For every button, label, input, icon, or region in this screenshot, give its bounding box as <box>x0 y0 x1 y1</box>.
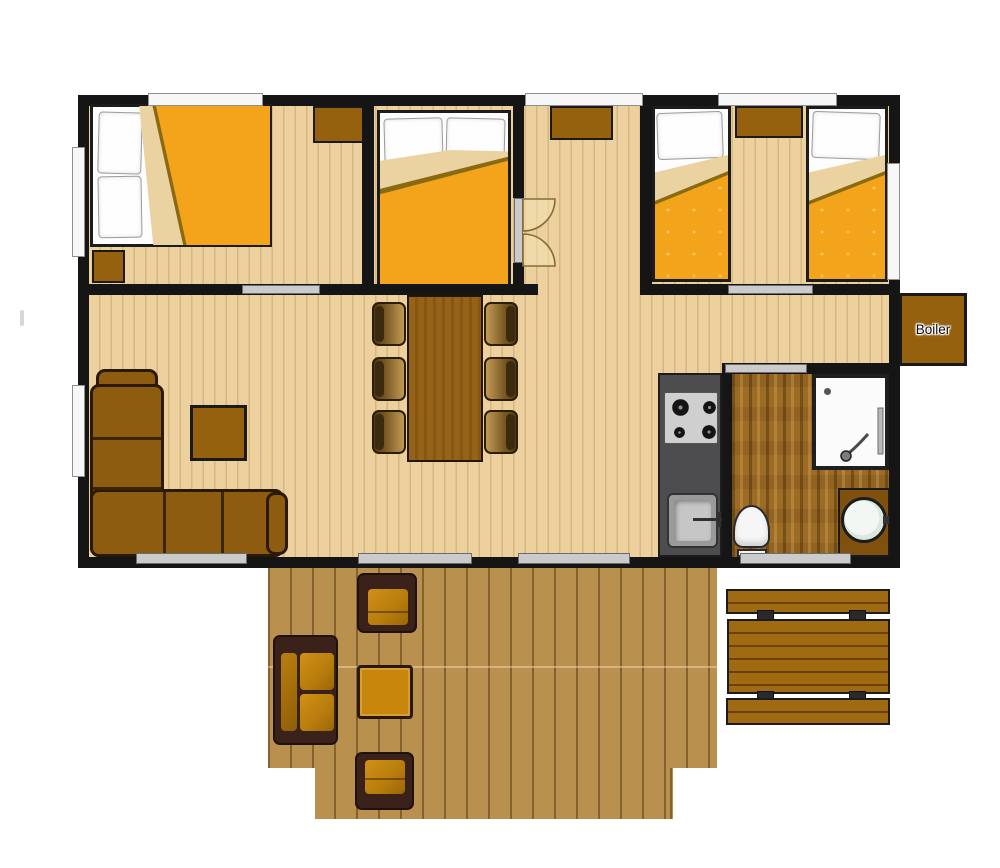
sofa-cushion-seam <box>93 487 161 490</box>
door-leaf-arc <box>523 199 555 231</box>
pillow <box>656 111 724 160</box>
sofa-cushion-seam <box>221 492 224 554</box>
picnic-bench-bottom <box>726 698 890 725</box>
wall-between-double-bedrooms <box>362 106 374 295</box>
hob-burner <box>672 399 689 416</box>
sofa-cushion-seam <box>163 492 166 554</box>
pillow <box>811 111 881 160</box>
boiler-cupboard: Boiler <box>899 293 967 366</box>
dining-chair <box>484 302 518 346</box>
shower-door-handle <box>878 408 883 454</box>
window-left-bedroom <box>72 147 85 257</box>
duvet <box>655 155 728 279</box>
corner-sofa-horizontal <box>90 489 284 557</box>
sofa-right-armrest <box>266 492 288 555</box>
wall-bedroom2-hall-upper <box>513 106 524 198</box>
dining-chair <box>484 357 518 401</box>
deck-armchair-bottom <box>355 752 414 810</box>
deck-armchair-top <box>357 573 417 633</box>
shower-drain <box>824 388 831 395</box>
wall-hall-twinroom <box>640 106 652 295</box>
hob-burner <box>674 427 685 438</box>
window-bottom-bathroom <box>740 553 851 564</box>
boiler-label: Boiler <box>916 322 951 337</box>
door-bedroom-left <box>242 285 320 294</box>
single-bed-right <box>806 106 888 282</box>
deck-sofa <box>273 635 338 745</box>
nightstand-bedroom-left <box>313 106 365 143</box>
dining-chair <box>484 410 518 454</box>
sink-faucet-handle <box>718 512 721 527</box>
double-bed-middle <box>377 110 511 284</box>
picnic-table <box>727 619 890 694</box>
sofa-back-cushion <box>281 653 297 731</box>
shower-fixture-icon <box>838 428 884 466</box>
living-coffee-table <box>190 405 247 461</box>
dining-chair <box>372 302 406 346</box>
door-leaf-arc <box>523 234 555 266</box>
sofa-seat-cushion <box>300 653 334 690</box>
floor-plan-canvas: Boiler <box>0 0 1000 868</box>
stray-print-mark <box>20 310 24 326</box>
window-bottom-living <box>136 553 247 564</box>
window-top-bedroom-left <box>148 93 263 106</box>
chair-backrest <box>506 361 515 397</box>
hall-wardrobe <box>550 106 613 140</box>
window-right-twin-room <box>887 163 900 280</box>
door-bathroom <box>725 364 807 373</box>
window-left-living <box>72 385 85 477</box>
sofa-cushion-seam <box>93 437 161 440</box>
chair-backrest <box>375 306 384 342</box>
dining-chair <box>372 410 406 454</box>
double-bed-left <box>90 104 272 247</box>
duvet <box>131 106 270 245</box>
shower-head <box>841 451 851 461</box>
dining-chair <box>372 357 406 401</box>
window-top-twin-room <box>718 93 837 106</box>
door-swing-arcs <box>513 195 563 270</box>
chair-backrest <box>375 361 384 397</box>
washbasin-tap <box>883 516 889 524</box>
single-bed-left <box>652 106 731 282</box>
chair-backrest <box>375 414 384 450</box>
door-twin-bedroom <box>728 285 813 294</box>
armchair-cushion <box>365 760 405 794</box>
stool-bedroom-left <box>92 250 125 283</box>
hob-burner <box>703 401 716 414</box>
chair-backrest <box>506 306 515 342</box>
wall-bathroom-left <box>722 363 732 557</box>
patio-door-left <box>358 553 472 564</box>
duvet <box>809 155 885 279</box>
patio-door-right <box>518 553 630 564</box>
cushion-seam <box>368 611 408 613</box>
cushion-seam <box>365 778 405 780</box>
chair-backrest <box>506 414 515 450</box>
dining-table <box>407 295 483 462</box>
window-top-hall <box>525 93 643 106</box>
sofa-seat-cushion <box>300 694 334 731</box>
armchair-cushion <box>368 589 408 625</box>
hob-burner <box>702 425 716 439</box>
washbasin <box>841 497 887 543</box>
nightstand-twin-room <box>735 106 803 138</box>
duvet <box>380 150 508 284</box>
deck-coffee-table <box>357 665 413 719</box>
